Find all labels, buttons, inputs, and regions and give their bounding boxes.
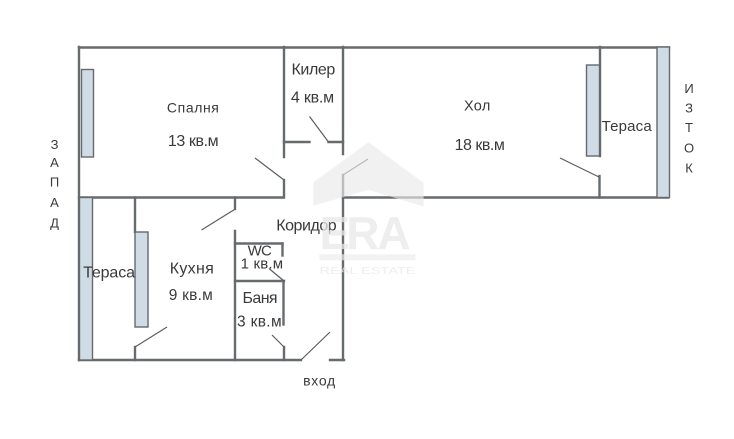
svg-text:9 кв.м: 9 кв.м bbox=[169, 287, 213, 304]
svg-text:А: А bbox=[50, 155, 59, 170]
svg-text:Спалня: Спалня bbox=[167, 100, 219, 116]
svg-text:П: П bbox=[50, 175, 59, 190]
svg-text:Кухня: Кухня bbox=[170, 261, 214, 278]
svg-text:вход: вход bbox=[303, 373, 335, 389]
svg-text:Килер: Килер bbox=[292, 62, 336, 79]
svg-text:Тераса: Тераса bbox=[83, 264, 135, 281]
svg-text:Т: Т bbox=[685, 120, 693, 135]
svg-text:4 кв.м: 4 кв.м bbox=[291, 90, 334, 107]
svg-text:З: З bbox=[51, 137, 59, 152]
svg-text:R: R bbox=[346, 207, 379, 259]
svg-text:З: З bbox=[685, 100, 693, 115]
svg-text:А: А bbox=[50, 195, 59, 210]
svg-text:И: И bbox=[684, 81, 693, 96]
svg-text:A: A bbox=[377, 207, 410, 259]
svg-text:Д: Д bbox=[50, 216, 59, 231]
svg-text:3 кв.м: 3 кв.м bbox=[237, 314, 282, 331]
svg-text:К: К bbox=[685, 160, 693, 175]
svg-text:1 кв.м: 1 кв.м bbox=[241, 256, 283, 273]
svg-text:Баня: Баня bbox=[243, 290, 278, 307]
svg-text:Тераса: Тераса bbox=[602, 118, 653, 135]
svg-text:REAL ESTATE: REAL ESTATE bbox=[320, 266, 416, 277]
svg-text:Хол: Хол bbox=[464, 98, 490, 114]
svg-text:13 кв.м: 13 кв.м bbox=[168, 133, 219, 150]
svg-text:О: О bbox=[684, 140, 694, 155]
svg-text:18 кв.м: 18 кв.м bbox=[455, 137, 505, 154]
